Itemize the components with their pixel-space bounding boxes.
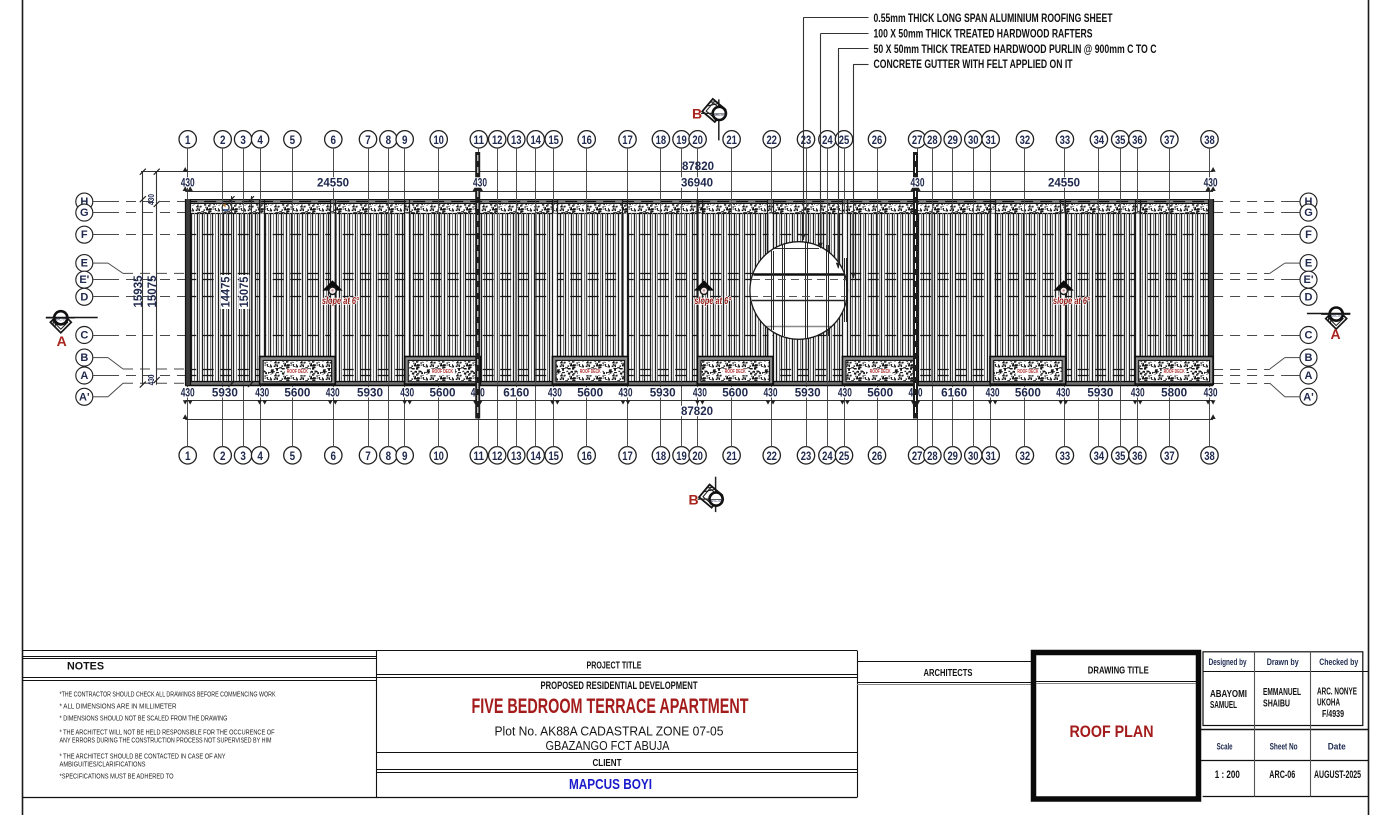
svg-text:430: 430	[693, 385, 707, 399]
svg-text:24550: 24550	[1048, 176, 1080, 190]
svg-text:13: 13	[511, 133, 522, 147]
svg-text:430: 430	[400, 385, 414, 399]
svg-text:430: 430	[1204, 176, 1218, 190]
svg-text:ROOF DECK: ROOF DECK	[287, 369, 308, 375]
svg-text:430: 430	[911, 176, 925, 190]
svg-text:1 : 200: 1 : 200	[1215, 769, 1240, 781]
svg-text:FIVE BEDROOM TERRACE APARTMENT: FIVE BEDROOM TERRACE APARTMENT	[472, 695, 749, 718]
svg-text:35: 35	[1115, 449, 1126, 463]
svg-text:19: 19	[676, 449, 687, 463]
svg-text:430: 430	[146, 374, 156, 385]
svg-text:AMBIGUITIES/CLARIFICATIONS: AMBIGUITIES/CLARIFICATIONS	[60, 762, 146, 769]
svg-text:B: B	[692, 105, 702, 121]
svg-text:Plot No. AK88A CADASTRAL ZONE: Plot No. AK88A CADASTRAL ZONE 07-05	[495, 724, 724, 739]
svg-text:21: 21	[726, 133, 737, 147]
svg-text:10: 10	[433, 449, 444, 463]
svg-text:Drawn by: Drawn by	[1267, 657, 1299, 667]
svg-text:ROOF DECK: ROOF DECK	[1164, 369, 1185, 375]
svg-text:31: 31	[985, 133, 996, 147]
svg-text:36: 36	[1132, 449, 1143, 463]
svg-text:5600: 5600	[1015, 385, 1041, 399]
svg-text:A': A'	[1303, 391, 1314, 403]
svg-text:26: 26	[872, 449, 883, 463]
svg-text:ABAYOMI: ABAYOMI	[1210, 689, 1247, 700]
svg-text:33: 33	[1060, 449, 1071, 463]
svg-text:* DIMENSIONS SHOULD NOT BE SCA: * DIMENSIONS SHOULD NOT BE SCALED FROM T…	[60, 716, 228, 723]
svg-text:C: C	[1305, 330, 1313, 342]
svg-text:ROOF DECK: ROOF DECK	[580, 369, 601, 375]
svg-text:24550: 24550	[317, 176, 349, 190]
svg-text:430: 430	[1204, 385, 1218, 399]
svg-text:slope at 6°: slope at 6°	[1053, 296, 1091, 307]
svg-text:430: 430	[181, 385, 195, 399]
svg-text:4: 4	[257, 133, 263, 147]
svg-text:20: 20	[692, 133, 703, 147]
svg-text:9: 9	[402, 449, 408, 463]
svg-text:F/4939: F/4939	[1322, 709, 1344, 720]
svg-text:ARC-05: ARC-05	[714, 113, 726, 117]
svg-text:6160: 6160	[941, 385, 967, 399]
svg-text:B: B	[80, 352, 88, 364]
svg-text:16: 16	[581, 449, 592, 463]
svg-text:15935: 15935	[131, 275, 145, 307]
svg-text:35: 35	[1115, 133, 1126, 147]
svg-text:GBAZANGO FCT ABUJA: GBAZANGO FCT ABUJA	[546, 738, 670, 753]
svg-text:23: 23	[801, 133, 812, 147]
svg-text:38: 38	[1204, 449, 1215, 463]
svg-text:29: 29	[947, 449, 958, 463]
svg-text:B: B	[688, 491, 698, 507]
svg-text:*THE CONTRACTOR SHOULD CHECK A: *THE CONTRACTOR SHOULD CHECK ALL DRAWING…	[60, 692, 276, 699]
svg-text:3: 3	[240, 449, 246, 463]
svg-text:3: 3	[240, 133, 246, 147]
svg-text:87820: 87820	[681, 404, 713, 418]
svg-text:slope at 6°: slope at 6°	[694, 296, 732, 307]
svg-text:34: 34	[1094, 449, 1105, 463]
svg-text:AUGUST-2025: AUGUST-2025	[1314, 769, 1361, 781]
svg-text:430: 430	[548, 385, 562, 399]
svg-text:5600: 5600	[577, 385, 603, 399]
svg-text:G: G	[80, 207, 89, 219]
svg-text:Date: Date	[1328, 742, 1346, 752]
svg-text:36: 36	[1132, 133, 1143, 147]
svg-text:E': E'	[79, 274, 89, 286]
svg-text:38: 38	[1204, 133, 1215, 147]
svg-text:430: 430	[764, 385, 778, 399]
svg-text:19: 19	[676, 133, 687, 147]
svg-text:F: F	[81, 229, 88, 241]
svg-text:ARCHITECTS: ARCHITECTS	[924, 667, 973, 679]
svg-text:ROOF DECK: ROOF DECK	[870, 369, 891, 375]
svg-text:PROJECT TITLE: PROJECT TITLE	[587, 661, 642, 672]
svg-text:8: 8	[386, 133, 392, 147]
svg-text:22: 22	[766, 133, 777, 147]
svg-text:100 X 50mm THICK TREATED HARDW: 100 X 50mm THICK TREATED HARDWOOD RAFTER…	[874, 27, 1093, 41]
svg-text:PROPOSED RESIDENTIAL DEVELOPME: PROPOSED RESIDENTIAL DEVELOPMENT	[541, 680, 698, 692]
svg-text:36940: 36940	[681, 176, 713, 190]
svg-text:5600: 5600	[284, 385, 310, 399]
svg-text:EMMANUEL: EMMANUEL	[1263, 687, 1301, 698]
svg-text:7: 7	[365, 449, 371, 463]
svg-text:ANY ERRORS DURING THE CONSTRUC: ANY ERRORS DURING THE CONSTRUCTION PROCE…	[60, 738, 272, 745]
svg-text:430: 430	[473, 176, 487, 190]
svg-text:27: 27	[912, 133, 923, 147]
svg-text:A: A	[80, 370, 88, 382]
svg-text:37: 37	[1164, 449, 1175, 463]
svg-text:28: 28	[927, 449, 938, 463]
svg-text:8: 8	[386, 449, 392, 463]
svg-text:430: 430	[255, 385, 269, 399]
svg-text:17: 17	[622, 133, 633, 147]
svg-text:5600: 5600	[867, 385, 893, 399]
svg-text:ARC-06: ARC-06	[1269, 769, 1295, 781]
svg-text:16: 16	[581, 133, 592, 147]
svg-text:5: 5	[290, 133, 296, 147]
svg-text:14475: 14475	[219, 276, 233, 307]
svg-text:12: 12	[492, 133, 503, 147]
svg-text:5930: 5930	[357, 385, 383, 399]
svg-text:34: 34	[1094, 133, 1105, 147]
svg-text:CONCRETE GUTTER WITH FELT APPL: CONCRETE GUTTER WITH FELT APPLIED ON IT	[874, 57, 1073, 71]
svg-text:14: 14	[530, 449, 541, 463]
svg-text:87820: 87820	[682, 159, 714, 173]
svg-text:30: 30	[968, 133, 979, 147]
svg-text:ROOF PLAN: ROOF PLAN	[1070, 722, 1154, 741]
svg-text:430: 430	[619, 385, 633, 399]
svg-text:5930: 5930	[212, 385, 238, 399]
svg-text:2: 2	[220, 133, 226, 147]
svg-text:* ALL DIMENSIONS ARE IN MILLIM: * ALL DIMENSIONS ARE IN MILLIMETER	[60, 704, 177, 711]
svg-text:15: 15	[548, 133, 559, 147]
svg-text:32: 32	[1020, 449, 1031, 463]
svg-text:50 X 50mm THICK TREATED HARDWO: 50 X 50mm THICK TREATED HARDWOOD PURLIN …	[874, 42, 1157, 56]
svg-text:C: C	[80, 330, 88, 342]
svg-text:12: 12	[492, 449, 503, 463]
svg-text:26: 26	[872, 133, 883, 147]
svg-text:6: 6	[331, 133, 337, 147]
svg-text:E': E'	[1304, 274, 1314, 286]
svg-text:4: 4	[257, 449, 263, 463]
svg-text:E: E	[81, 258, 88, 270]
svg-text:D: D	[80, 291, 88, 303]
svg-text:5600: 5600	[430, 385, 456, 399]
svg-text:ROOF DECK: ROOF DECK	[1017, 369, 1038, 375]
svg-text:6160: 6160	[503, 385, 529, 399]
svg-text:24: 24	[822, 133, 833, 147]
svg-text:2: 2	[220, 449, 226, 463]
svg-text:SHAIBU: SHAIBU	[1263, 699, 1290, 710]
svg-text:A: A	[1330, 326, 1340, 342]
svg-text:17: 17	[622, 449, 633, 463]
svg-text:9: 9	[402, 133, 408, 147]
svg-text:21: 21	[726, 449, 737, 463]
svg-text:30: 30	[968, 449, 979, 463]
svg-text:13: 13	[511, 449, 522, 463]
svg-text:ARC-05: ARC-05	[1331, 314, 1343, 318]
svg-text:11: 11	[474, 449, 485, 463]
svg-text:MAPCUS BOYI: MAPCUS BOYI	[569, 776, 652, 793]
svg-text:33: 33	[1060, 133, 1071, 147]
svg-text:430: 430	[181, 176, 195, 190]
svg-text:Sheet No: Sheet No	[1270, 742, 1298, 752]
svg-text:11: 11	[474, 133, 485, 147]
svg-text:UKOHA: UKOHA	[1317, 698, 1340, 709]
svg-text:5600: 5600	[722, 385, 748, 399]
svg-text:24: 24	[822, 449, 833, 463]
svg-text:Checked by: Checked by	[1319, 657, 1358, 667]
svg-text:* THE ARCHITECT SHOULD BE CONT: * THE ARCHITECT SHOULD BE CONTACTED IN C…	[60, 754, 226, 761]
svg-text:5930: 5930	[1087, 385, 1113, 399]
svg-text:6: 6	[331, 449, 337, 463]
svg-text:ARC-05: ARC-05	[710, 499, 722, 503]
svg-text:1: 1	[185, 133, 191, 147]
svg-text:25: 25	[839, 449, 850, 463]
svg-text:SAMUEL: SAMUEL	[1210, 700, 1237, 711]
svg-text:430: 430	[986, 385, 1000, 399]
svg-text:F: F	[1305, 229, 1312, 241]
svg-text:5930: 5930	[650, 385, 676, 399]
svg-text:CLIENT: CLIENT	[593, 758, 622, 769]
svg-text:18: 18	[656, 449, 667, 463]
svg-text:B: B	[1305, 352, 1313, 364]
svg-text:ROOF DECK: ROOF DECK	[725, 369, 746, 375]
svg-text:* THE ARCHITECT WILL NOT BE HE: * THE ARCHITECT WILL NOT BE HELD RESPONS…	[60, 730, 275, 737]
svg-text:14: 14	[530, 133, 541, 147]
svg-text:18: 18	[656, 133, 667, 147]
svg-text:G: G	[1304, 207, 1313, 219]
svg-text:E: E	[1305, 258, 1312, 270]
svg-text:31: 31	[985, 449, 996, 463]
svg-text:430: 430	[1056, 385, 1070, 399]
svg-text:10: 10	[433, 133, 444, 147]
svg-text:15075: 15075	[237, 276, 251, 307]
svg-text:NOTES: NOTES	[67, 661, 104, 673]
svg-text:ARC. NONYE: ARC. NONYE	[1317, 687, 1357, 698]
svg-text:slope at 6°: slope at 6°	[322, 296, 360, 307]
svg-text:5800: 5800	[1161, 385, 1187, 399]
svg-text:430: 430	[838, 385, 852, 399]
svg-text:29: 29	[947, 133, 958, 147]
svg-text:28: 28	[927, 133, 938, 147]
svg-text:5930: 5930	[795, 385, 821, 399]
svg-text:5: 5	[290, 449, 296, 463]
svg-text:430: 430	[146, 194, 156, 205]
svg-text:A': A'	[79, 391, 90, 403]
svg-text:DRAWING TITLE: DRAWING TITLE	[1088, 665, 1149, 677]
svg-text:7: 7	[365, 133, 371, 147]
svg-text:32: 32	[1020, 133, 1031, 147]
svg-text:Designed by: Designed by	[1209, 657, 1247, 667]
svg-text:1: 1	[185, 449, 191, 463]
svg-text:D: D	[1305, 291, 1313, 303]
svg-text:*SPECIFICATIONS MUST BE ADHERE: *SPECIFICATIONS MUST BE ADHERED TO	[60, 774, 174, 781]
svg-text:23: 23	[801, 449, 812, 463]
svg-text:A: A	[1305, 370, 1313, 382]
svg-text:37: 37	[1164, 133, 1175, 147]
svg-text:430: 430	[1131, 385, 1145, 399]
svg-text:25: 25	[839, 133, 850, 147]
svg-text:ROOF DECK: ROOF DECK	[432, 369, 453, 375]
svg-text:Scale: Scale	[1217, 742, 1233, 752]
svg-text:15075: 15075	[145, 275, 159, 307]
svg-text:430: 430	[326, 385, 340, 399]
svg-text:0.55mm THICK LONG SPAN ALUMINI: 0.55mm THICK LONG SPAN ALUMINIUM ROOFING…	[874, 11, 1113, 25]
svg-text:15: 15	[548, 449, 559, 463]
svg-text:22: 22	[766, 449, 777, 463]
svg-text:A: A	[57, 333, 67, 349]
svg-text:20: 20	[692, 449, 703, 463]
svg-text:27: 27	[912, 449, 923, 463]
